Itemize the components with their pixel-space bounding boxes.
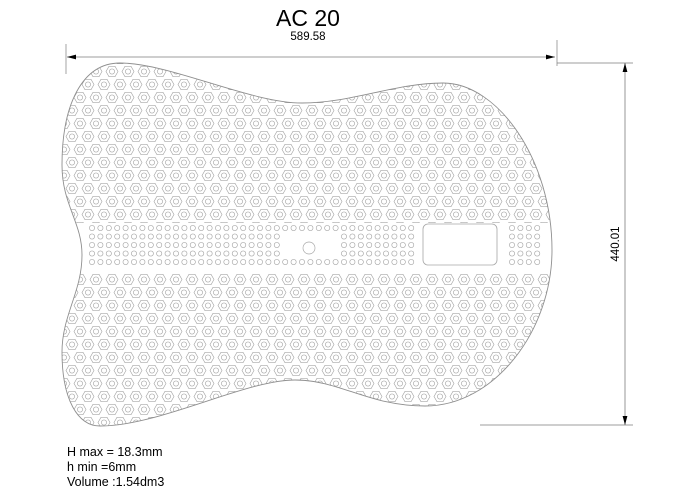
height-dimension-label: 440.01 <box>610 226 622 261</box>
width-dimension-label: 589.58 <box>290 31 325 43</box>
technical-drawing-canvas: AC 20 589.58 440.01 H max = 18.3mm h min… <box>0 0 700 494</box>
arrow-down-icon <box>623 416 628 425</box>
arrow-up-icon <box>623 63 628 72</box>
drawing-title: AC 20 <box>276 5 340 31</box>
label-recess <box>423 224 497 265</box>
note-h-min: h min =6mm <box>67 460 136 474</box>
drawing-sheet: AC 20 589.58 440.01 H max = 18.3mm h min… <box>0 0 700 494</box>
note-h-max: H max = 18.3mm <box>67 445 163 459</box>
arrow-right-icon <box>546 55 555 60</box>
notes-block: H max = 18.3mm h min =6mm Volume :1.54dm… <box>67 445 164 489</box>
note-volume: Volume :1.54dm3 <box>67 475 164 489</box>
part-view <box>55 55 560 435</box>
arrow-left-icon <box>67 55 76 60</box>
